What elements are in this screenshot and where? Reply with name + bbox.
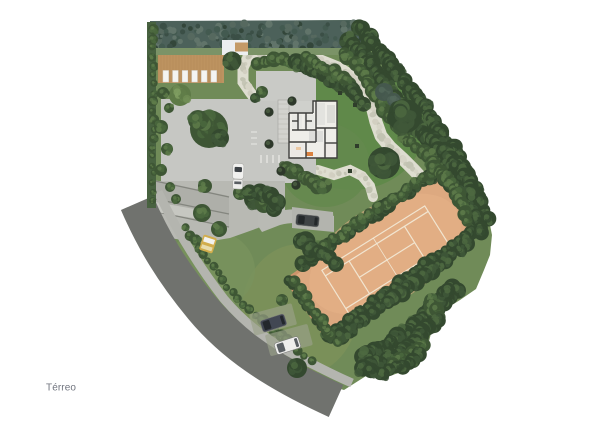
svg-text:Térreo: Térreo [46, 383, 76, 394]
